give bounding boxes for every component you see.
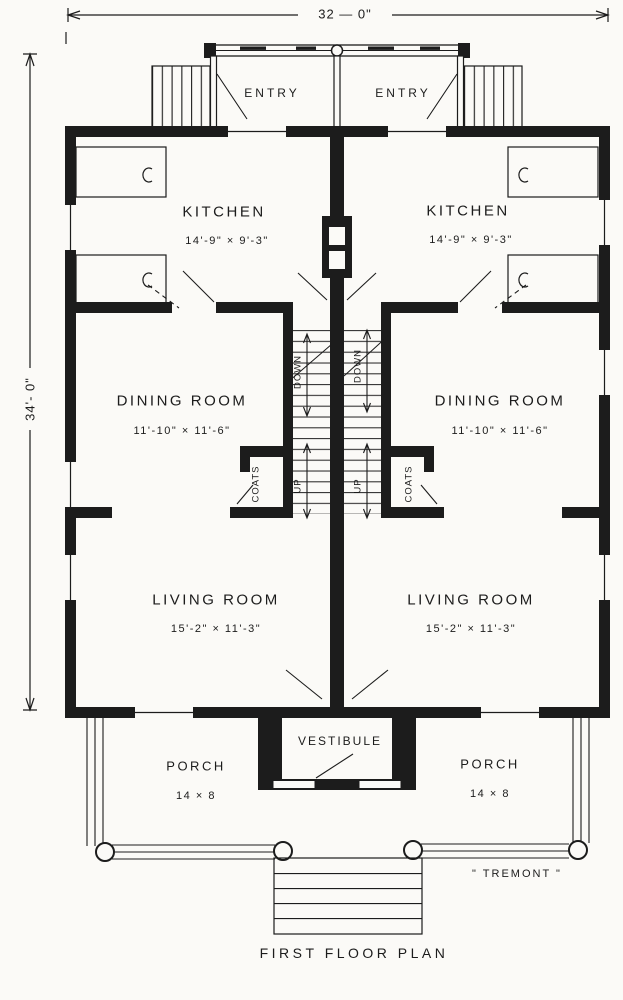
vestibule-walls — [258, 707, 416, 790]
stair-down-right-label: DOWN — [353, 349, 364, 383]
entry-left-label: ENTRY — [244, 86, 299, 100]
coats-left-label: COATS — [251, 465, 262, 502]
house-name-label: " TREMONT " — [472, 868, 562, 880]
kitchen-left-label: KITCHEN — [182, 204, 265, 221]
dining-left-size: 11'-10" × 11'-6" — [133, 425, 230, 437]
dining-right-size: 11'-10" × 11'-6" — [451, 425, 548, 437]
porch-right-size: 14 × 8 — [470, 788, 510, 800]
living-left-label: LIVING ROOM — [152, 592, 280, 609]
stair-up-right-label: UP — [353, 478, 364, 493]
entry-right-label: ENTRY — [375, 86, 430, 100]
porch-left-size: 14 × 8 — [176, 790, 216, 802]
kitchen-right-label: KITCHEN — [426, 203, 509, 220]
kitchen-right-size: 14'-9" × 9'-3" — [429, 234, 512, 246]
dining-left-label: DINING ROOM — [117, 393, 248, 410]
width-dimension-label: 32 — 0" — [318, 7, 372, 22]
stair-down-left-label: DOWN — [293, 355, 304, 389]
vestibule-label: VESTIBULE — [298, 734, 382, 748]
coats-right-label: COATS — [404, 465, 415, 502]
height-dimension-label: 34'- 0" — [23, 377, 38, 421]
living-left-size: 15'-2" × 11'-3" — [171, 623, 261, 635]
living-right-size: 15'-2" × 11'-3" — [426, 623, 516, 635]
front-steps — [274, 858, 422, 934]
stair-up-left-label: UP — [293, 478, 304, 493]
floor-plan-page: 32 — 0" 34'- 0" ENTRY ENTRY KITCHEN 14'-… — [0, 0, 623, 1000]
dining-right-label: DINING ROOM — [435, 393, 566, 410]
porch-left-label: PORCH — [166, 759, 225, 774]
porch-right-label: PORCH — [460, 757, 519, 772]
plan-caption: FIRST FLOOR PLAN — [260, 945, 449, 961]
kitchen-left-size: 14'-9" × 9'-3" — [185, 235, 268, 247]
floor-plan-drawing — [0, 0, 623, 1000]
living-right-label: LIVING ROOM — [407, 592, 535, 609]
